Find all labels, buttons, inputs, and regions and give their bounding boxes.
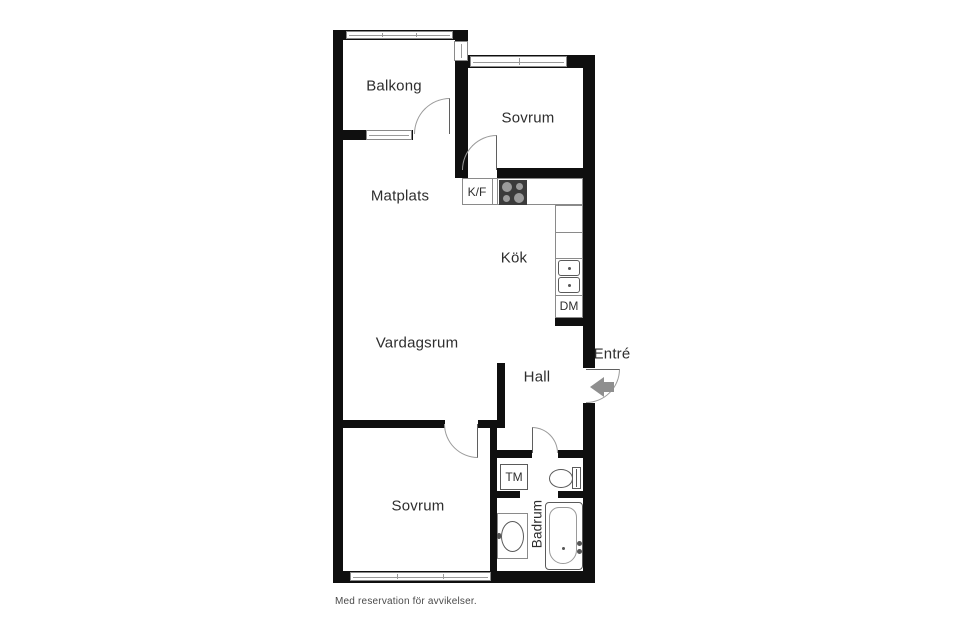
- counter-divider: [555, 258, 583, 259]
- counter-divider: [555, 295, 583, 296]
- window-divider: [382, 33, 383, 37]
- drain-dot: [568, 284, 571, 287]
- room-label-sovrum-bottom: Sovrum: [392, 498, 445, 515]
- room-label-sovrum-top: Sovrum: [502, 110, 555, 127]
- faucet-knob: [577, 541, 582, 546]
- wall-hall-bathroom-left: [497, 450, 532, 458]
- counter-divider: [492, 178, 493, 205]
- bathroom-vanity-icon: [497, 513, 528, 559]
- floor-plan: Balkong Sovrum Matplats K/F Kök DM Varda…: [0, 0, 960, 640]
- room-label-vardagsrum: Vardagsrum: [376, 335, 459, 352]
- room-label-balkong: Balkong: [366, 78, 422, 95]
- wall-livingroom-bedroom-divider: [343, 420, 445, 428]
- tank-line: [576, 469, 577, 487]
- burner-icon: [514, 193, 524, 203]
- bathroom-sink-basin-icon: [501, 521, 524, 552]
- toilet-bowl-icon: [549, 469, 573, 488]
- toilet-tank-icon: [572, 467, 581, 489]
- burner-icon: [502, 182, 512, 192]
- disclaimer-text: Med reservation för avvikelser.: [335, 596, 477, 607]
- bedroom-bottom-window: [350, 572, 491, 581]
- balcony-bottom-window: [366, 130, 412, 140]
- balcony-door-arc: [414, 98, 450, 134]
- wall-hall-bathroom-right: [558, 450, 583, 458]
- room-label-kok: Kök: [501, 250, 527, 267]
- burner-icon: [503, 195, 510, 202]
- wall-bathroom-mid-right: [558, 491, 583, 498]
- bedroom-top-window: [470, 56, 567, 67]
- window-glass-line: [461, 44, 462, 58]
- window-glass-line: [353, 577, 488, 578]
- wall-left-exterior: [333, 30, 343, 583]
- room-label-badrum: Badrum: [530, 500, 545, 548]
- fixture-label-kf: K/F: [468, 185, 487, 199]
- wall-kitchen-top: [497, 168, 595, 178]
- fixture-label-dm: DM: [560, 299, 579, 313]
- counter-divider: [497, 178, 498, 205]
- burner-icon: [516, 183, 523, 190]
- window-glass-line: [369, 135, 409, 136]
- bathtub-inner: [549, 507, 577, 564]
- wall-kitchen-bottom-stub: [555, 318, 595, 326]
- drain-dot: [568, 267, 571, 270]
- faucet-dot: [497, 533, 501, 539]
- bathtub-icon: [545, 502, 583, 570]
- fixture-label-tm: TM: [505, 470, 522, 484]
- bedroom-bottom-door-arc: [444, 424, 478, 458]
- counter-divider: [555, 232, 583, 233]
- window-divider: [397, 574, 398, 579]
- kitchen-sink-basin-icon: [558, 260, 580, 276]
- stove-icon: [499, 180, 527, 205]
- wall-hall-livingroom-divider: [497, 363, 505, 428]
- window-glass-line: [349, 35, 450, 36]
- entry-direction-arrow-icon: [590, 377, 604, 397]
- drain-dot: [562, 547, 565, 550]
- room-label-entre: Entré: [594, 346, 631, 363]
- wall-bedroom-bathroom-divider: [490, 420, 497, 571]
- window-divider: [443, 574, 444, 579]
- wall-kitchen-top-stub: [455, 168, 462, 178]
- room-label-matplats: Matplats: [371, 188, 429, 205]
- balcony-side-window: [454, 41, 468, 61]
- balcony-railing-window: [346, 31, 453, 39]
- wall-bathroom-mid-left: [497, 491, 520, 498]
- entry-direction-arrow-tail: [603, 382, 614, 392]
- window-divider: [519, 58, 520, 65]
- room-label-hall: Hall: [524, 369, 551, 386]
- faucet-knob: [577, 549, 582, 554]
- bathroom-door-arc: [532, 427, 558, 453]
- kitchen-sink-basin-icon: [558, 277, 580, 293]
- wall-right-lower: [583, 403, 595, 583]
- window-divider: [416, 33, 417, 37]
